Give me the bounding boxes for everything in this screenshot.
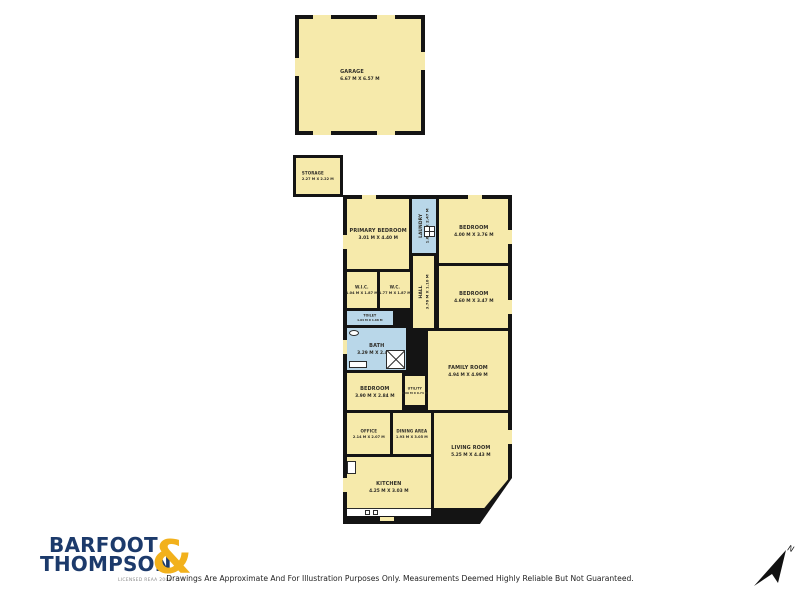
room-hall: HALL 3.76 M X 1.10 M bbox=[413, 256, 434, 328]
window-mark bbox=[343, 235, 347, 249]
room-dining-area: DINING AREA 1.93 M X 3.05 M bbox=[393, 413, 431, 454]
room-dims: 1.77 M X 1.87 M bbox=[379, 290, 411, 295]
logo-ampersand: & bbox=[152, 534, 192, 580]
floor-plan-page: GARAGE 6.67 M X 6.57 M STORAGE 2.27 M X … bbox=[0, 0, 800, 600]
room-dims: 2.14 M X 2.07 M bbox=[353, 434, 385, 439]
room-dims: 4.94 M X 4.99 M bbox=[448, 371, 488, 377]
room-dims: 3.90 M X 2.84 M bbox=[355, 392, 394, 398]
window-mark bbox=[377, 15, 395, 19]
window-mark bbox=[468, 195, 482, 199]
sink-icon bbox=[349, 330, 359, 336]
room-dims: 1.04 M X 1.68 M bbox=[357, 318, 382, 322]
window-mark bbox=[313, 15, 331, 19]
window-mark bbox=[377, 131, 395, 135]
room-primary-bedroom: PRIMARY BEDROOM 3.01 M X 4.40 M bbox=[347, 199, 409, 269]
window-mark bbox=[343, 340, 347, 354]
window-mark bbox=[380, 517, 394, 521]
window-mark bbox=[508, 300, 512, 314]
room-dims: 4.60 M X 3.47 M bbox=[454, 297, 493, 303]
room-name: DINING AREA bbox=[396, 428, 428, 434]
room-dims: 5.25 M X 4.43 M bbox=[451, 451, 490, 457]
kitchen-counter bbox=[347, 508, 431, 516]
window-mark bbox=[295, 58, 299, 76]
room-dims: 4.25 M X 3.03 M bbox=[369, 487, 408, 493]
room-name: OFFICE bbox=[353, 428, 385, 434]
room-name: BEDROOM bbox=[454, 290, 493, 297]
room-label: GARAGE 6.67 M X 6.57 M bbox=[340, 68, 379, 81]
stove-icon bbox=[373, 510, 378, 515]
window-mark bbox=[508, 230, 512, 244]
room-living-room: LIVING ROOM 5.25 M X 4.43 M bbox=[434, 413, 508, 508]
stove-icon bbox=[365, 510, 370, 515]
room-name: KITCHEN bbox=[369, 480, 408, 487]
room-dims: 3.01 M X 4.40 M bbox=[349, 234, 406, 240]
disclaimer-text: Drawings Are Approximate And For Illustr… bbox=[20, 574, 780, 583]
washer-icon bbox=[424, 226, 435, 237]
vanity-icon bbox=[349, 361, 367, 368]
window-mark bbox=[421, 52, 425, 70]
room-bedroom-3: BEDROOM 4.60 M X 3.47 M bbox=[439, 266, 508, 328]
north-arrow-svg: N bbox=[748, 540, 798, 595]
room-bedroom-4: BEDROOM 3.90 M X 2.84 M bbox=[347, 373, 402, 410]
room-name: FAMILY ROOM bbox=[448, 364, 488, 371]
room-dims: 3.76 M X 1.10 M bbox=[424, 274, 430, 309]
room-storage: STORAGE 2.27 M X 2.22 M bbox=[293, 155, 343, 197]
compass-label: N bbox=[786, 544, 795, 555]
room-bedroom-2: BEDROOM 4.00 M X 3.76 M bbox=[439, 199, 508, 263]
room-name: UTILITY bbox=[402, 386, 427, 391]
room-toilet: TOILET 1.04 M X 1.68 M bbox=[347, 311, 393, 325]
window-mark bbox=[313, 131, 331, 135]
room-dims: 6.67 M X 6.57 M bbox=[340, 75, 379, 81]
room-dims: 0.60 M X 0.74 M bbox=[402, 391, 427, 395]
room-dims: 1.04 M X 1.87 M bbox=[346, 290, 378, 295]
window-mark bbox=[362, 195, 376, 199]
room-name: BEDROOM bbox=[355, 385, 394, 392]
window-mark bbox=[508, 430, 512, 444]
room-office: OFFICE 2.14 M X 2.07 M bbox=[347, 413, 390, 454]
room-laundry: LAUNDRY 1.65 M X 2.47 M bbox=[412, 199, 436, 253]
room-name: LIVING ROOM bbox=[451, 444, 490, 451]
room-name: HALL bbox=[418, 274, 424, 309]
room-name: BEDROOM bbox=[454, 224, 493, 231]
room-kitchen: KITCHEN 4.25 M X 3.03 M bbox=[347, 457, 431, 516]
room-dims: 4.00 M X 3.76 M bbox=[454, 231, 493, 237]
shower-icon bbox=[386, 350, 405, 369]
room-garage: GARAGE 6.67 M X 6.57 M bbox=[295, 15, 425, 135]
room-wic: W.I.C. 1.04 M X 1.87 M bbox=[347, 272, 377, 308]
room-name: PRIMARY BEDROOM bbox=[349, 227, 406, 234]
room-wc: W.C. 1.77 M X 1.87 M bbox=[380, 272, 410, 308]
window-mark bbox=[343, 478, 347, 492]
room-family-room: FAMILY ROOM 4.94 M X 4.99 M bbox=[428, 331, 508, 410]
room-dims: 1.93 M X 3.05 M bbox=[396, 434, 428, 439]
fridge-icon bbox=[347, 461, 356, 474]
room-utility: UTILITY 0.60 M X 0.74 M bbox=[405, 376, 425, 405]
room-dims: 2.27 M X 2.22 M bbox=[302, 176, 334, 181]
room-bath: BATH 3.29 M X 2.45 M bbox=[347, 328, 406, 370]
main-house-outline: PRIMARY BEDROOM 3.01 M X 4.40 M LAUNDRY … bbox=[343, 195, 512, 524]
north-arrow-icon: N bbox=[748, 540, 798, 595]
room-label: STORAGE 2.27 M X 2.22 M bbox=[302, 171, 334, 182]
